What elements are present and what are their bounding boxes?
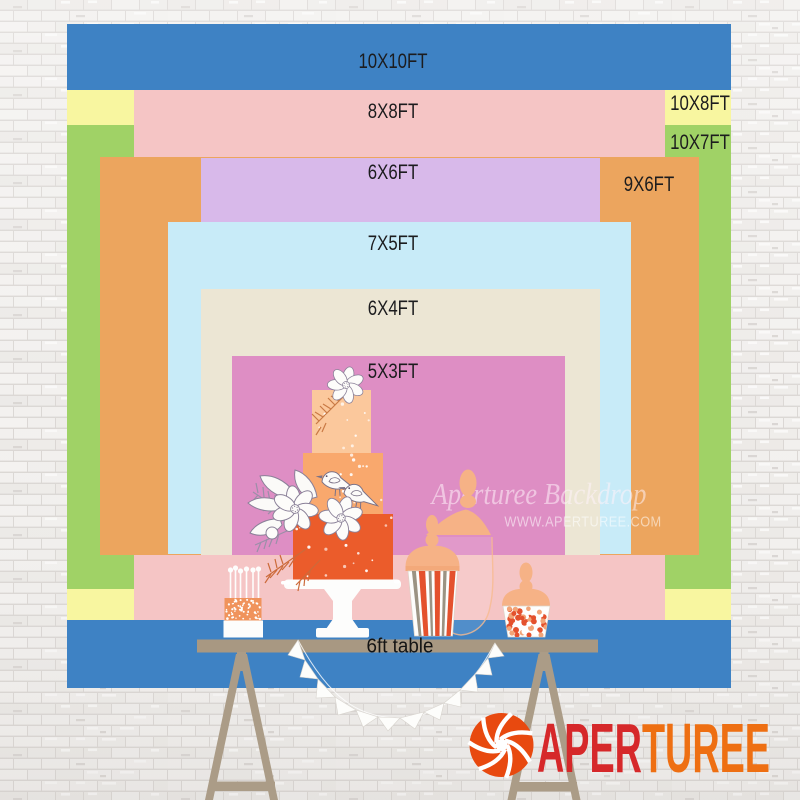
svg-text:APERTUREE: APERTUREE bbox=[537, 709, 770, 787]
